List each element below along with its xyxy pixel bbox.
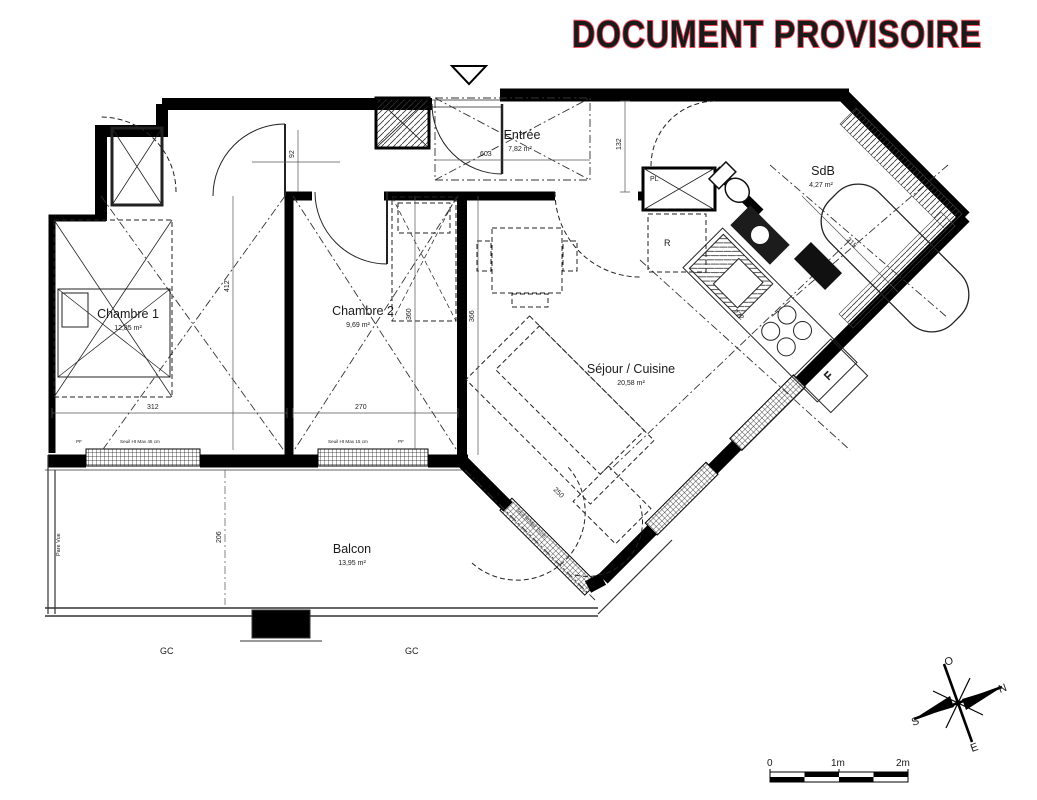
- window-chambre1: [86, 449, 200, 466]
- window-chambre2: [318, 449, 428, 466]
- dimension-lines: [52, 101, 898, 605]
- pf-label-1: PF: [76, 439, 82, 444]
- scale-0: 0: [767, 758, 773, 769]
- floor-plan-page: LL PL R: [0, 0, 1037, 800]
- room-area-chambre1: 12,85 m²: [114, 325, 142, 332]
- dim-603: 603: [480, 151, 492, 158]
- entrance-marker-icon: [452, 66, 486, 84]
- dining-table: [492, 228, 562, 293]
- shaft: [376, 98, 429, 148]
- watermark-text: DOCUMENT PROVISOIRE: [572, 14, 982, 56]
- gc-label-left: GC: [160, 646, 174, 656]
- balcony-pillar: [252, 610, 310, 638]
- window-sejour-balcony: [500, 498, 597, 595]
- fridge-label: R: [664, 238, 671, 248]
- compass-e: E: [969, 741, 980, 755]
- placard-label: PL: [650, 176, 659, 183]
- compass-rose: O N S E: [910, 654, 1009, 754]
- furniture-chambre1: [54, 128, 172, 397]
- room-label-chambre2: Chambre 2: [332, 304, 394, 318]
- furniture-chambre2: [392, 197, 456, 321]
- room-area-sejour: 20,58 m²: [617, 380, 645, 387]
- dim-312: 312: [147, 404, 159, 411]
- dim-270: 270: [355, 404, 367, 411]
- dim-206: 206: [216, 531, 223, 543]
- room-label-balcon: Balcon: [333, 542, 371, 556]
- window-sejour-right-2: [645, 462, 718, 535]
- dim-366: 366: [469, 310, 476, 322]
- room-label-chambre1: Chambre 1: [97, 307, 159, 321]
- seuil-15-label: Seuil Ht Max 15 cm: [328, 439, 368, 444]
- seuil-45-label: Seuil Ht Max 45 cm: [120, 439, 160, 444]
- dim-132: 132: [616, 138, 623, 150]
- room-area-chambre2: 9,69 m²: [346, 322, 370, 329]
- dim-412: 412: [224, 280, 231, 292]
- pillow-chambre2: [398, 203, 450, 233]
- dim-250: 250: [552, 486, 565, 499]
- room-label-sdb: SdB: [811, 164, 835, 178]
- chair-right: [563, 241, 577, 271]
- window-sejour-right-1: [730, 375, 806, 451]
- floor-plan-drawing: LL PL R: [0, 0, 1037, 800]
- room-area-balcon: 13,95 m²: [338, 560, 366, 567]
- room-label-sejour: Séjour / Cuisine: [587, 362, 675, 376]
- chair-left: [477, 241, 491, 271]
- dim-92: 92: [289, 150, 296, 158]
- pillow-chambre1: [62, 293, 88, 327]
- washer-label: LL: [822, 371, 833, 382]
- scale-bar: 0 1m 2m: [767, 758, 910, 782]
- dim-360: 360: [406, 308, 413, 320]
- chair-bottom: [512, 294, 548, 307]
- sofa: [466, 316, 654, 504]
- gc-label-right: GC: [405, 646, 419, 656]
- tile-band-2: [839, 212, 955, 328]
- scale-1m: 1m: [831, 758, 845, 769]
- pare-vue-label: Pare Vue: [56, 533, 62, 556]
- pf-label-2: PF: [398, 439, 404, 444]
- room-area-entree: 7,82 m²: [508, 146, 532, 153]
- room-label-entree: Entrée: [504, 128, 541, 142]
- scale-2m: 2m: [896, 758, 910, 769]
- bath-step: [794, 242, 842, 290]
- compass-n: N: [997, 682, 1009, 696]
- room-area-sdb: 4,27 m²: [809, 182, 833, 189]
